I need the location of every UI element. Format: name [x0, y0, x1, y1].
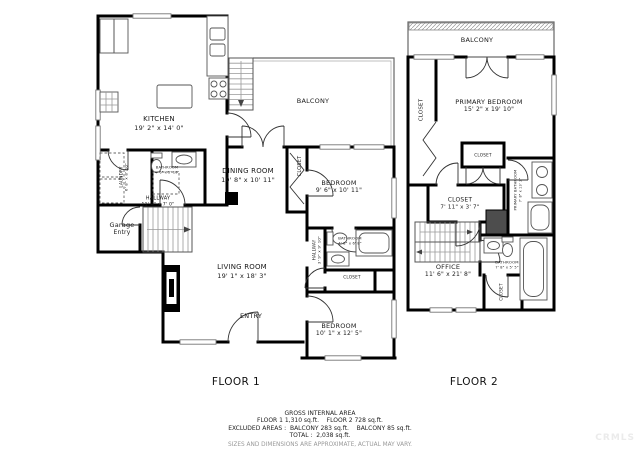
crmls-watermark: CRMLS [595, 433, 635, 443]
floor1-stairs-lower [143, 207, 192, 252]
floor1-balcony-label: BALCONY [297, 97, 329, 105]
floor1-bedroom-2-label: BEDROOM10' 1" x 12' 5" [316, 322, 362, 338]
floor1-closet-2-label: CLOSET [343, 274, 360, 279]
floor1-dining-room-label: DINING ROOM19' 8" x 10' 11" [221, 167, 275, 185]
floor1-bathroom-1-label: BATHROOM4' 6" x 5' 10" [155, 165, 179, 174]
floor2-closet-bottom-label: CLOSET [498, 283, 503, 300]
floor2-closet-left-label: CLOSET [418, 99, 425, 122]
floorplan-canvas: BALCONYKITCHEN19' 2" x 14' 0"LAUNDRY6' 8… [0, 0, 640, 452]
floor1-column [225, 192, 238, 205]
floor1-hallway-1-label: HALLWAY11' 4" x 7' 0" [141, 196, 174, 209]
floor1-bedroom-1-label: BEDROOM9' 6" x 10' 11" [316, 179, 362, 195]
floor2-bathroom-label: BATHROOM7' 8" x 5' 5" [495, 260, 519, 270]
floor2-primary-bathroom-label: PRIMARY BATHROOM7' 8" x 13' 2" [513, 170, 522, 211]
floor2-closet-box-label: CLOSET [474, 152, 491, 157]
floorplan-svg [0, 0, 640, 452]
floor2-office-label: OFFICE11' 6" x 21' 8" [425, 263, 471, 279]
floor1-laundry-label: LAUNDRY6' 8" x 8' 10" [119, 163, 130, 191]
floor1-hallway-2-label: HALLWAY3' 9" x 9' 10" [312, 236, 323, 264]
floor2-primary-bedroom-label: PRIMARY BEDROOM15' 2" x 19' 10" [455, 98, 522, 114]
floor2-balcony-label: BALCONY [461, 36, 493, 44]
total-area: TOTAL : 2,038 sq.ft. [0, 432, 640, 439]
floor2-stairs [415, 222, 480, 262]
floor1-bathroom-2-label: BATHROOM4' 8" x 6' 8" [338, 236, 362, 246]
floor-areas: FLOOR 1 1,310 sq.ft. FLOOR 2 728 sq.ft. [0, 417, 640, 424]
floor1-stairs-top [229, 58, 253, 110]
floor2-title: FLOOR 2 [450, 376, 498, 388]
disclaimer: SIZES AND DIMENSIONS ARE APPROXIMATE, AC… [0, 442, 640, 449]
floor1-fireplace [163, 265, 180, 312]
floor1-living-room-label: LIVING ROOM19' 1" x 18' 3" [217, 263, 267, 281]
floor1-title: FLOOR 1 [212, 376, 260, 388]
floor2-closet-mid-label: CLOSET7' 11" x 3' 7" [440, 196, 479, 211]
gross-area-title: GROSS INTERNAL AREA [0, 410, 640, 417]
floor1-entry-label: ENTRY [240, 312, 262, 320]
floor1-closet-1-label: CLOSET [297, 156, 304, 177]
floor1-kitchen-label: KITCHEN19' 2" x 14' 0" [134, 115, 183, 133]
excluded-areas: EXCLUDED AREAS : BALCONY 283 sq.ft. BALC… [0, 425, 640, 432]
floor1-garage-entry-label: GarageEntry [109, 221, 134, 237]
area-summary: GROSS INTERNAL AREA FLOOR 1 1,310 sq.ft.… [0, 410, 640, 449]
floor1-kitchen-fixtures [100, 16, 228, 112]
